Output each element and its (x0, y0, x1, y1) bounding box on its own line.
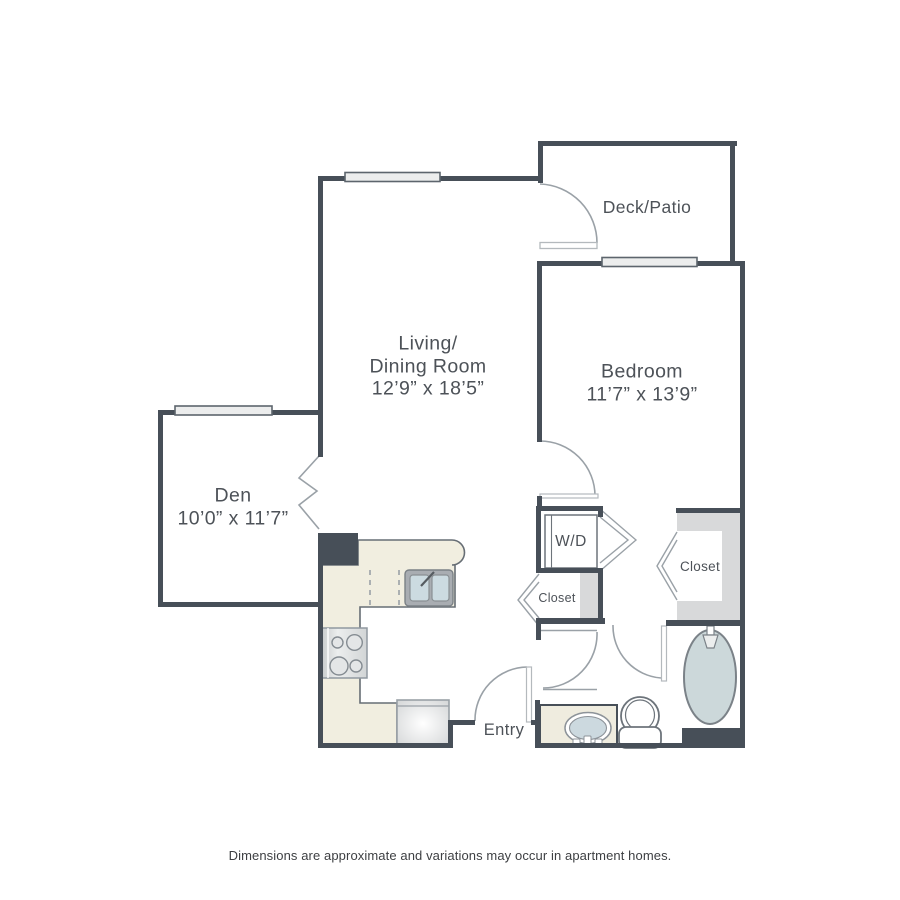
den-accordion-door (299, 456, 319, 529)
hall-closet-label: Closet (538, 587, 575, 610)
bathroom-vanity (540, 705, 617, 747)
living-dining-dimensions: 12’9” x 18’5” (369, 377, 486, 400)
disclaimer-text: Dimensions are approximate and variation… (0, 848, 900, 863)
den-window (175, 406, 272, 415)
hall-closet-shading (580, 573, 599, 618)
toilet (619, 697, 661, 748)
bedroom-door (540, 441, 598, 498)
bathroom-door (613, 625, 667, 681)
deck-door (540, 184, 597, 249)
floor-plan-page: Deck/Patio Living/ Dining Room 12’9” x 1… (0, 0, 900, 900)
kitchen-sink (405, 570, 453, 606)
walls (158, 141, 745, 748)
bathtub (684, 626, 736, 724)
entry-label: Entry (484, 719, 525, 742)
bedroom-closet-label: Closet (680, 556, 720, 579)
tub-faucet-icon (707, 626, 714, 635)
living-room-window (345, 173, 440, 182)
bedroom-closet-bifold-door (657, 532, 677, 600)
stove-cooktop (322, 628, 367, 678)
living-dining-label: Living/ Dining Room 12’9” x 18’5” (369, 332, 486, 400)
den-label: Den 10’0” x 11’7” (177, 485, 288, 530)
entry-door (475, 667, 532, 722)
wd-closet-bifold-door (600, 509, 636, 571)
floor-plan-drawing (0, 0, 900, 900)
bedroom-label: Bedroom 11’7” x 13’9” (586, 361, 697, 406)
bedroom-dimensions: 11’7” x 13’9” (586, 383, 697, 406)
den-dimensions: 10’0” x 11’7” (177, 507, 288, 530)
bedroom-window (602, 258, 697, 267)
deck-patio-label: Deck/Patio (603, 196, 692, 219)
hall-bathroom-door (540, 631, 597, 690)
refrigerator (397, 700, 449, 747)
hall-closet-bifold-door (518, 574, 539, 626)
washer-dryer-label: W/D (555, 531, 587, 554)
